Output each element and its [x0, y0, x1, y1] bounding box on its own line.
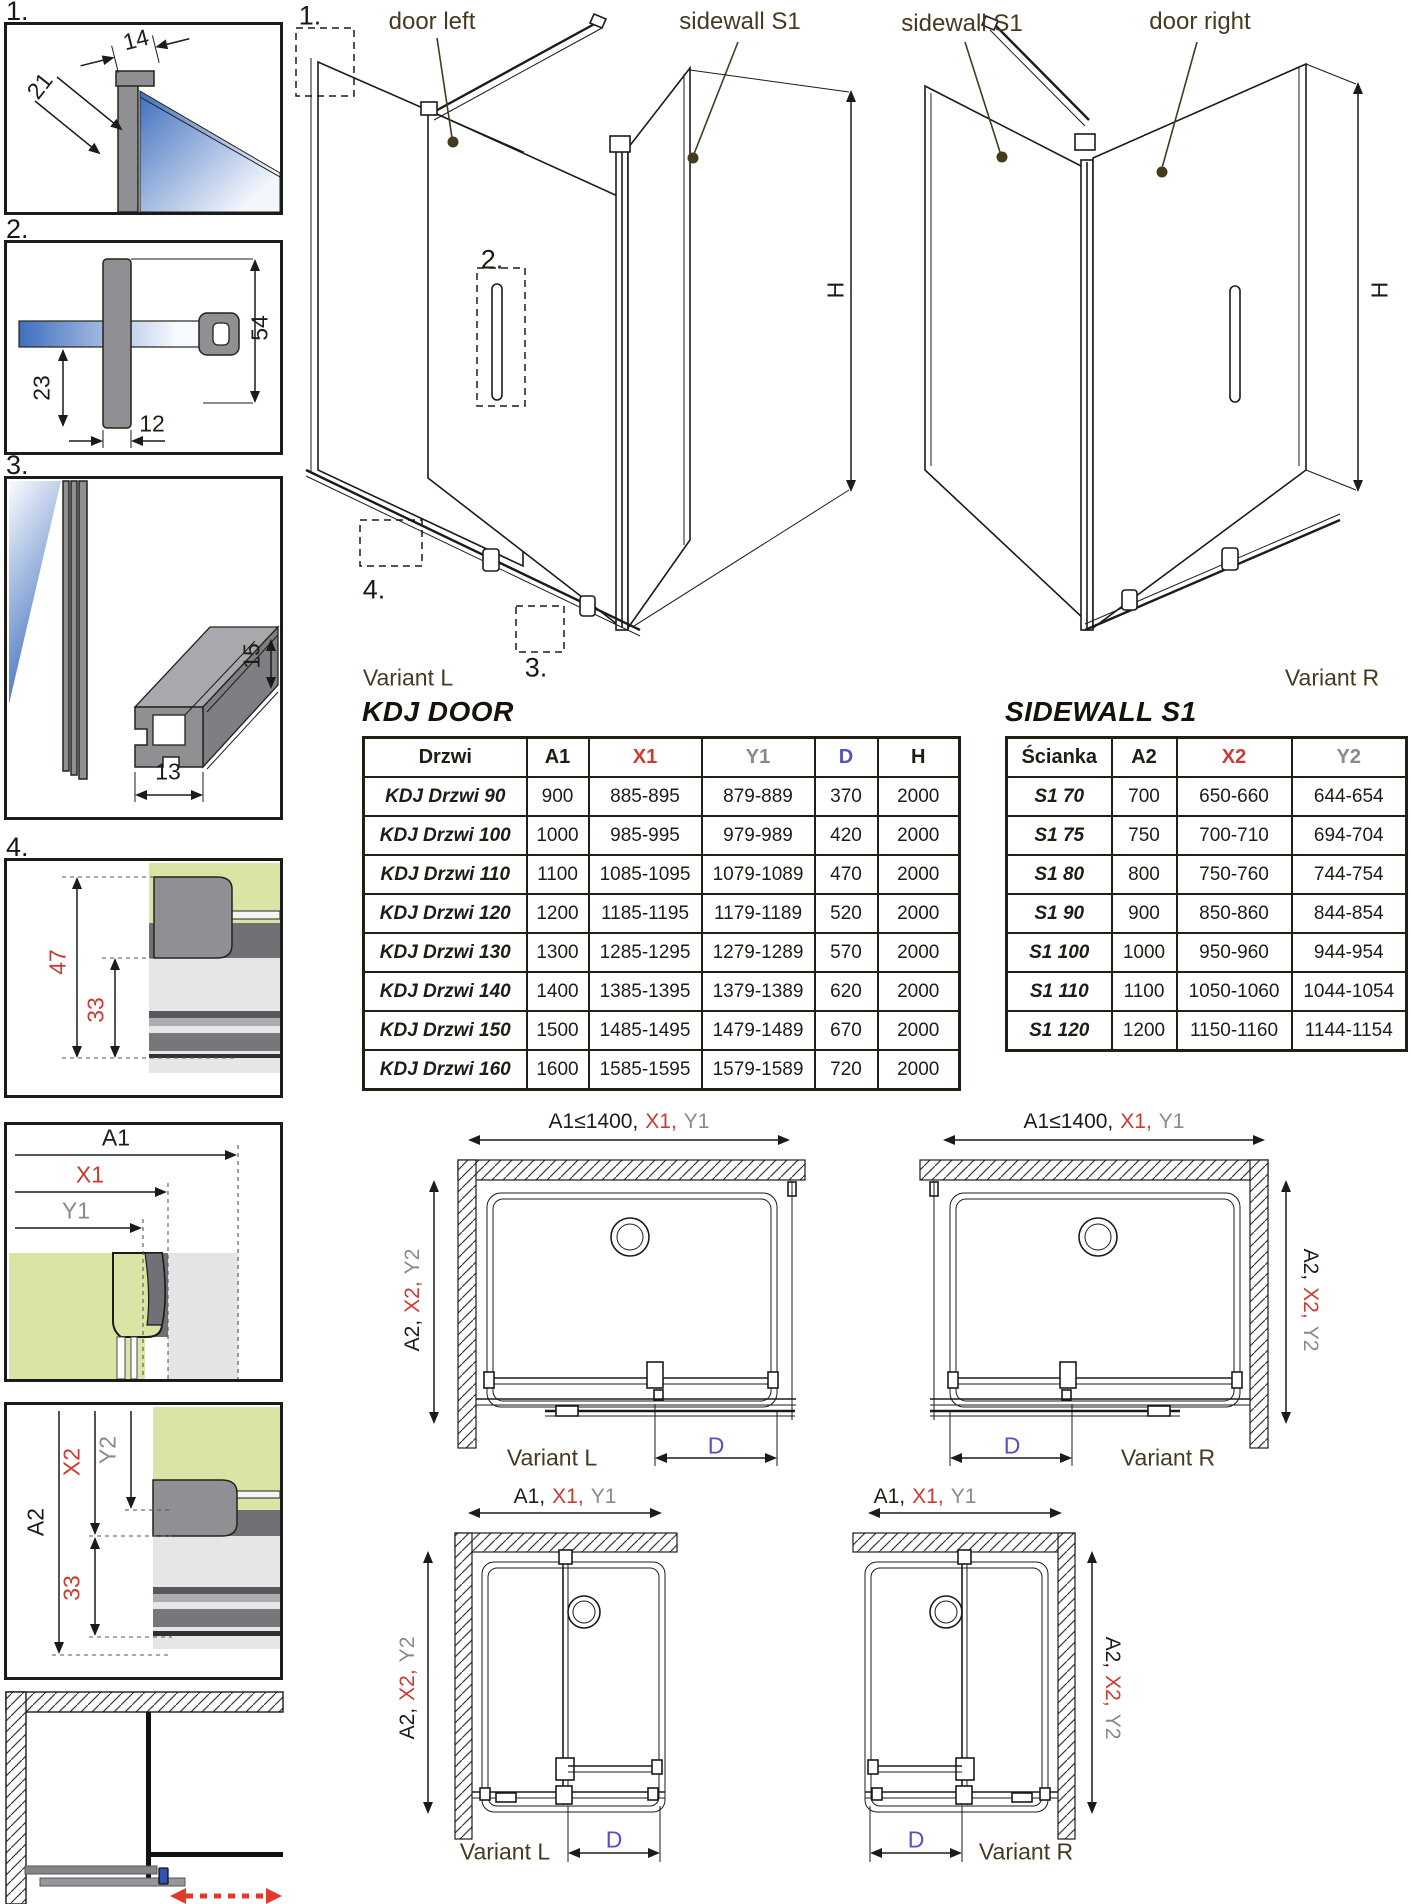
table-row: S1 75750700-710694-704 [1007, 816, 1407, 855]
cell: 700-710 [1177, 816, 1292, 855]
dim-a2: A2, [1101, 1637, 1124, 1669]
col-header: D [815, 738, 878, 778]
table-row: KDJ Drzwi 1001000985-995979-9894202000 [364, 816, 960, 855]
cell: S1 100 [1007, 933, 1112, 972]
plan-br-top-dim: A1,X1,Y1 [874, 1485, 977, 1509]
detail-plan-h-drawing [7, 1125, 280, 1379]
cell: 1050-1060 [1177, 972, 1292, 1011]
detail-2-dim-height: 54 [247, 315, 274, 341]
cell: 844-854 [1292, 894, 1407, 933]
door-table-header-row: Drzwi A1 X1 Y1 D H [364, 738, 960, 778]
plan-br-variant: Variant R [979, 1839, 1073, 1866]
cell: 670 [815, 1011, 878, 1050]
spec-sheet: 1. 14 21 2. 54 23 12 3. [0, 0, 1411, 1904]
cell: 1279-1289 [702, 933, 815, 972]
cell: 650-660 [1177, 777, 1292, 816]
cell: 520 [815, 894, 878, 933]
col-header: Ścianka [1007, 738, 1112, 778]
col-header: H [878, 738, 960, 778]
detail-4-dim-inner: 33 [83, 997, 110, 1023]
cell: 1400 [527, 972, 589, 1011]
cell: 1000 [527, 816, 589, 855]
plan-bottom-right-drawing [853, 1513, 1092, 1862]
sidewall-table: Ścianka A2 X2 Y2 S1 70700650-660644-654 … [1005, 736, 1408, 1052]
detail-2-number: 2. [6, 214, 29, 245]
detail-plan-v-drawing [7, 1405, 280, 1677]
table-row: S1 11011001050-10601044-1054 [1007, 972, 1407, 1011]
detail-plan-v-panel [4, 1402, 283, 1680]
iso-right-drawing [925, 16, 1358, 630]
cell: 885-895 [589, 777, 702, 816]
dim-x1: X1, [552, 1485, 584, 1508]
detail-2-dim-inner: 23 [29, 375, 56, 401]
sidewall-table-title: SIDEWALL S1 [1005, 696, 1197, 728]
cell: KDJ Drzwi 130 [364, 933, 527, 972]
iso-left-marker-1: 1. [299, 1, 322, 32]
cell: 800 [1112, 855, 1177, 894]
table-row: KDJ Drzwi 11011001085-10951079-108947020… [364, 855, 960, 894]
plan-top-left-drawing [434, 1140, 805, 1466]
plan-br-side-dim: A2,X2,Y2 [1100, 1637, 1124, 1740]
dim-y2: Y2 [1101, 1714, 1124, 1740]
dim-y2: Y2 [401, 1249, 424, 1275]
iso-right-sidewall-label: sidewall S1 [901, 10, 1022, 38]
plan-tr-side-dim: A2,X2,Y2 [1298, 1249, 1322, 1352]
cell: 950-960 [1177, 933, 1292, 972]
detail-plan-v-y2: Y2 [95, 1436, 122, 1464]
dim-a1: A1≤1400, [549, 1110, 639, 1133]
plan-tl-variant: Variant L [507, 1445, 597, 1472]
col-header: Y2 [1292, 738, 1407, 778]
cell: 2000 [878, 1011, 960, 1050]
cell: 1379-1389 [702, 972, 815, 1011]
cell: 1585-1595 [589, 1050, 702, 1090]
iso-right-height-label: H [1367, 282, 1394, 299]
door-table: Drzwi A1 X1 Y1 D H KDJ Drzwi 90900885-89… [362, 736, 961, 1091]
detail-4-number: 4. [6, 832, 29, 863]
cell: KDJ Drzwi 120 [364, 894, 527, 933]
detail-4-panel [4, 858, 283, 1098]
detail-plan-h-x1: X1 [76, 1162, 104, 1189]
table-row: KDJ Drzwi 16016001585-15951579-158972020… [364, 1050, 960, 1090]
cell: 700 [1112, 777, 1177, 816]
table-row: KDJ Drzwi 12012001185-11951179-118952020… [364, 894, 960, 933]
cell: 1079-1089 [702, 855, 815, 894]
cell: 744-754 [1292, 855, 1407, 894]
detail-plan-h-y1: Y1 [62, 1198, 90, 1225]
dim-a2: A2, [396, 1708, 419, 1740]
cell: 850-860 [1177, 894, 1292, 933]
detail-3-number: 3. [6, 450, 29, 481]
iso-left-door-label: door left [389, 8, 476, 36]
detail-4-drawing [7, 861, 280, 1095]
dim-x2: X2, [396, 1669, 419, 1701]
iso-left-variant-label: Variant L [363, 665, 453, 692]
detail-1-drawing [7, 25, 280, 212]
iso-left-drawing [296, 14, 851, 652]
cell: 1100 [527, 855, 589, 894]
dim-x2: X2, [1299, 1287, 1322, 1319]
cell: 1300 [527, 933, 589, 972]
cell: KDJ Drzwi 140 [364, 972, 527, 1011]
dim-y1: Y1 [1159, 1110, 1185, 1133]
dim-x2: X2, [1101, 1675, 1124, 1707]
iso-right-door-label: door right [1149, 8, 1250, 36]
iso-left-marker-2: 2. [481, 245, 504, 276]
cell: 2000 [878, 894, 960, 933]
table-row: KDJ Drzwi 90900885-895879-8893702000 [364, 777, 960, 816]
cell: 420 [815, 816, 878, 855]
cell: KDJ Drzwi 90 [364, 777, 527, 816]
cell: 570 [815, 933, 878, 972]
detail-plan-v-33: 33 [59, 1575, 86, 1601]
cell: 1385-1395 [589, 972, 702, 1011]
dim-y2: Y2 [1299, 1326, 1322, 1352]
cell: 1285-1295 [589, 933, 702, 972]
cell: KDJ Drzwi 110 [364, 855, 527, 894]
dim-y2: Y2 [396, 1637, 419, 1663]
cell: 2000 [878, 972, 960, 1011]
cell: 979-989 [702, 816, 815, 855]
cell: 1185-1195 [589, 894, 702, 933]
plan-top-right-drawing [920, 1140, 1286, 1466]
cell: 1044-1054 [1292, 972, 1407, 1011]
iso-left-sidewall-label: sidewall S1 [679, 8, 800, 36]
cell: S1 120 [1007, 1011, 1112, 1051]
dim-x1: X1, [1120, 1110, 1152, 1133]
cell: 694-704 [1292, 816, 1407, 855]
table-row: S1 12012001150-11601144-1154 [1007, 1011, 1407, 1051]
dim-a1: A1, [514, 1485, 546, 1508]
cell: 644-654 [1292, 777, 1407, 816]
cell: 1150-1160 [1177, 1011, 1292, 1051]
plan-tr-door-dim: D [1004, 1433, 1021, 1460]
iso-left-height-label: H [823, 282, 850, 299]
col-header: Y1 [702, 738, 815, 778]
cell: 2000 [878, 1050, 960, 1090]
table-row: S1 70700650-660644-654 [1007, 777, 1407, 816]
dim-y1: Y1 [951, 1485, 977, 1508]
plan-tl-side-dim: A2,X2,Y2 [401, 1249, 425, 1352]
cell: 720 [815, 1050, 878, 1090]
detail-plan-v-a2: A2 [23, 1508, 50, 1536]
plan-bottom-left-drawing [428, 1513, 677, 1862]
cell: 900 [1112, 894, 1177, 933]
dim-a2: A2, [401, 1320, 424, 1352]
plan-bl-side-dim: A2,X2,Y2 [396, 1637, 420, 1740]
cell: S1 90 [1007, 894, 1112, 933]
detail-4-dim-outer: 47 [45, 949, 72, 975]
col-header: X1 [589, 738, 702, 778]
dim-x1: X1, [912, 1485, 944, 1508]
cell: S1 75 [1007, 816, 1112, 855]
dim-x1: X1, [645, 1110, 677, 1133]
cell: 470 [815, 855, 878, 894]
plan-bl-top-dim: A1,X1,Y1 [514, 1485, 617, 1509]
plan-br-door-dim: D [908, 1827, 925, 1854]
table-row: KDJ Drzwi 15015001485-14951479-148967020… [364, 1011, 960, 1050]
cell: 900 [527, 777, 589, 816]
cell: 1200 [527, 894, 589, 933]
col-header: A1 [527, 738, 589, 778]
col-header: A2 [1112, 738, 1177, 778]
cell: 1144-1154 [1292, 1011, 1407, 1051]
detail-plan-v-x2: X2 [59, 1448, 86, 1476]
cell: KDJ Drzwi 150 [364, 1011, 527, 1050]
cell: 750-760 [1177, 855, 1292, 894]
cell: 1179-1189 [702, 894, 815, 933]
table-row: S1 1001000950-960944-954 [1007, 933, 1407, 972]
plan-tl-top-dim: A1≤1400,X1,Y1 [549, 1110, 710, 1134]
detail-plan-h-a1: A1 [102, 1125, 130, 1152]
plan-tr-variant: Variant R [1121, 1445, 1215, 1472]
dim-y1: Y1 [591, 1485, 617, 1508]
plan-tl-door-dim: D [708, 1433, 725, 1460]
table-row: S1 90900850-860844-854 [1007, 894, 1407, 933]
cell: KDJ Drzwi 160 [364, 1050, 527, 1090]
detail-plan-h-panel [4, 1122, 283, 1382]
cell: 2000 [878, 816, 960, 855]
detail-3-dim-height: 15 [239, 643, 266, 669]
detail-2-dim-width: 12 [139, 411, 165, 438]
cell: 944-954 [1292, 933, 1407, 972]
plan-bl-variant: Variant L [460, 1839, 550, 1866]
dim-x2: X2, [401, 1281, 424, 1313]
cell: S1 70 [1007, 777, 1112, 816]
dim-a2: A2, [1299, 1249, 1322, 1281]
iso-left-marker-3: 3. [525, 653, 548, 684]
cell: 1000 [1112, 933, 1177, 972]
detail-3-dim-width: 13 [155, 759, 181, 786]
cell: 2000 [878, 777, 960, 816]
table-row: KDJ Drzwi 13013001285-12951279-128957020… [364, 933, 960, 972]
cell: 1579-1589 [702, 1050, 815, 1090]
iso-right-variant-label: Variant R [1285, 665, 1379, 692]
cell: 1500 [527, 1011, 589, 1050]
cell: 1479-1489 [702, 1011, 815, 1050]
cell: 370 [815, 777, 878, 816]
col-header: Drzwi [364, 738, 527, 778]
corner-detail-drawing [6, 1692, 283, 1904]
cell: 1200 [1112, 1011, 1177, 1051]
cell: 1100 [1112, 972, 1177, 1011]
cell: S1 80 [1007, 855, 1112, 894]
door-table-title: KDJ DOOR [362, 696, 514, 728]
dim-y1: Y1 [684, 1110, 710, 1133]
cell: 1485-1495 [589, 1011, 702, 1050]
cell: 879-889 [702, 777, 815, 816]
detail-1-number: 1. [6, 0, 29, 27]
cell: 750 [1112, 816, 1177, 855]
cell: KDJ Drzwi 100 [364, 816, 527, 855]
cell: S1 110 [1007, 972, 1112, 1011]
iso-left-marker-4: 4. [363, 575, 386, 606]
dim-a1: A1≤1400, [1024, 1110, 1114, 1133]
plan-bl-door-dim: D [606, 1827, 623, 1854]
cell: 620 [815, 972, 878, 1011]
cell: 2000 [878, 933, 960, 972]
cell: 1600 [527, 1050, 589, 1090]
col-header: X2 [1177, 738, 1292, 778]
dim-a1: A1, [874, 1485, 906, 1508]
sidewall-table-header-row: Ścianka A2 X2 Y2 [1007, 738, 1407, 778]
cell: 985-995 [589, 816, 702, 855]
table-row: S1 80800750-760744-754 [1007, 855, 1407, 894]
plan-tr-top-dim: A1≤1400,X1,Y1 [1024, 1110, 1185, 1134]
cell: 1085-1095 [589, 855, 702, 894]
cell: 2000 [878, 855, 960, 894]
table-row: KDJ Drzwi 14014001385-13951379-138962020… [364, 972, 960, 1011]
